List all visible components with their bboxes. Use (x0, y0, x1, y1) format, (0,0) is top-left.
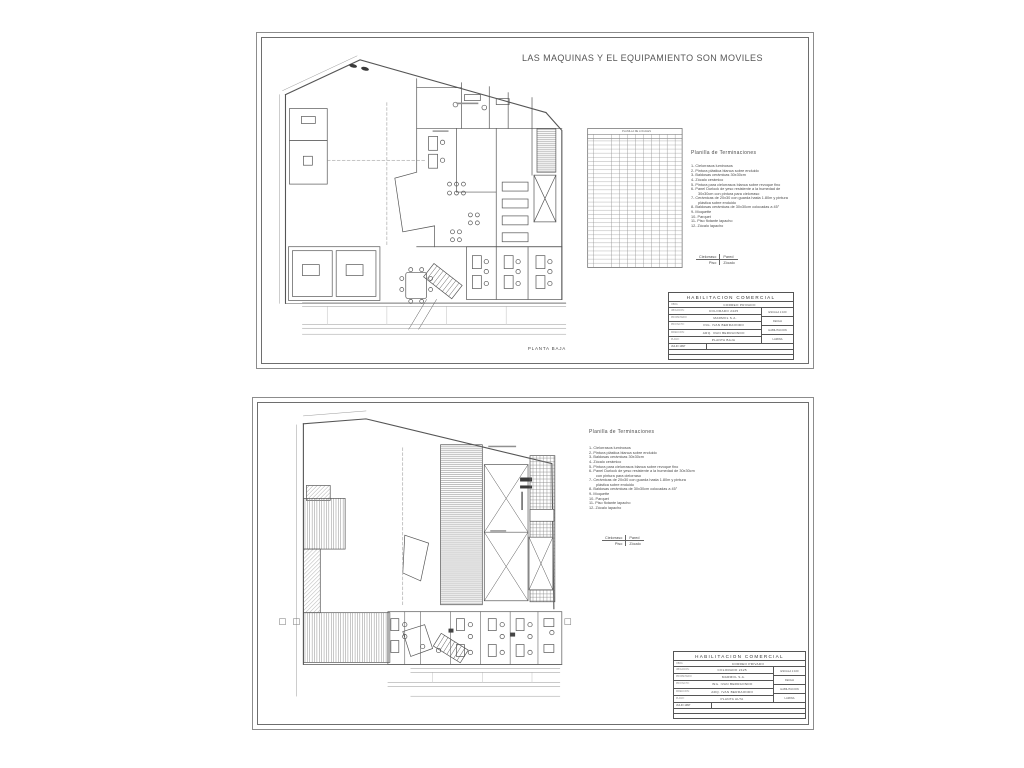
finishes-item: 10- Parquet (589, 497, 697, 501)
sheet-planta-alta: Planilla de Terminaciones 1- Cielorrasos… (252, 397, 814, 730)
title-block-side-cell: LAMINA (762, 335, 793, 344)
title-block-row: PLANO: PLANTA ALTA (674, 696, 773, 703)
finishes-item: 7- Cerámicas de 20x30 con guarda hasta 1… (589, 478, 697, 487)
title-block-row: PROYECTO: ING. IVAN BERRAONDO (669, 322, 761, 329)
finishes-heading: Planilla de Terminaciones (589, 429, 654, 435)
title-block-row: PROYECTO: ING. IVAN BERRAONDO (674, 681, 773, 688)
title-block-side-cell: HABILITACION (774, 685, 805, 694)
title-block-date: JULIO 1997 (674, 703, 712, 708)
title-block-side-cell: ESCALA 1:100 (762, 308, 793, 317)
mobile-equipment-note: LAS MAQUINAS Y EL EQUIPAMIENTO SON MOVIL… (522, 53, 763, 63)
finishes-item: 11- Piso flotante lapacho (691, 219, 795, 223)
finishes-item: 5- Pintura para cielorrasos blanca sobre… (691, 183, 795, 187)
finishes-item: 9- Moquette (589, 492, 697, 496)
title-block-side-cell: FECHA (762, 317, 793, 326)
subject-value: CORREO PRIVADO (686, 303, 793, 307)
title-block-planta-baja: HABILITACION COMERCIAL OBRA: CORREO PRIV… (668, 292, 794, 360)
key-floor-label: Piso (602, 541, 626, 546)
key-base-label: Zócalo (720, 260, 737, 265)
finishes-item: 2- Pintura plástica blanca sobre enduido (589, 451, 697, 455)
subject-label: OBRA: (669, 304, 686, 306)
title-block-empty-rows (669, 350, 793, 359)
title-block-side-cell: ESCALA 1:100 (774, 667, 805, 676)
finishes-item: 8- Baldosas cerámicas de 30x30cm colocad… (589, 487, 697, 491)
finishes-item: 1- Cielorrasos luminosos (589, 446, 697, 450)
finishes-key: Cielorraso Pared Piso Zócalo (696, 254, 738, 265)
key-base-label: Zócalo (626, 541, 643, 546)
room-schedule-title: PLANILLA DE LOCALES (589, 130, 684, 133)
sheet-planta-baja: LAS MAQUINAS Y EL EQUIPAMIENTO SON MOVIL… (256, 32, 814, 369)
finishes-list: 1- Cielorrasos luminosos2- Pintura plást… (589, 446, 697, 511)
subject-value: CORREO PRIVADO (691, 662, 805, 666)
finishes-item: 5- Pintura para cielorrasos blanca sobre… (589, 465, 697, 469)
title-block-row: PROPIETARIO: MARMOL S.A. (669, 315, 761, 322)
title-block-row: DIRECCION: ARQ. IVAN BERRAONDO (669, 330, 761, 337)
finishes-item: 2- Pintura plástica blanca sobre enduido (691, 169, 795, 173)
finishes-item: 1- Cielorrasos luminosos (691, 164, 795, 168)
finishes-item: 11- Piso flotante lapacho (589, 501, 697, 505)
plan-linework (280, 411, 571, 696)
title-block-side-cell: FECHA (774, 676, 805, 685)
finishes-list: 1- Cielorrasos luminosos2- Pintura plást… (691, 164, 795, 229)
finishes-item: 4- Zócalo cerámico (691, 178, 795, 182)
title-block-rows: UBICACION: COLORADO 2425 PROPIETARIO: MA… (674, 667, 773, 703)
finishes-item: 12- Zócalo lapacho (691, 224, 795, 228)
subject-label: OBRA: (674, 663, 691, 665)
title-block-side-cell: HABILITACION (762, 326, 793, 335)
finishes-item: 7- Cerámicas de 20x30 con guarda hasta 1… (691, 196, 795, 205)
finishes-item: 3- Baldosas cerámicas 30x30cm (691, 173, 795, 177)
title-block-row: PLANO: PLANTA BAJA (669, 337, 761, 344)
title-block-side-cell: LAMINA (774, 694, 805, 703)
title-block-rows: UBICACION: COLORADO 2425 PROPIETARIO: MA… (669, 308, 761, 344)
room-schedule-table (588, 128, 682, 267)
title-block-heading: HABILITACION COMERCIAL (669, 293, 793, 302)
title-block-row: UBICACION: COLORADO 2425 (669, 308, 761, 315)
title-block-empty-rows (674, 709, 805, 718)
key-floor-label: Piso (696, 260, 720, 265)
title-block-planta-alta: HABILITACION COMERCIAL OBRA: CORREO PRIV… (673, 651, 806, 719)
title-block-side-cells: ESCALA 1:100FECHAHABILITACIONLAMINA (773, 667, 805, 703)
finishes-item: 6- Panel Durlock de yeso resistente a la… (691, 187, 795, 196)
finishes-item: 6- Panel Durlock de yeso resistente a la… (589, 469, 697, 478)
finishes-key: Cielorraso Pared Piso Zócalo (602, 535, 644, 546)
finishes-item: 9- Moquette (691, 210, 795, 214)
title-block-side-cells: ESCALA 1:100FECHAHABILITACIONLAMINA (761, 308, 793, 344)
finishes-item: 4- Zócalo cerámico (589, 460, 697, 464)
finishes-heading: Planilla de Terminaciones (691, 150, 756, 156)
finishes-item: 12- Zócalo lapacho (589, 506, 697, 510)
title-block-row: UBICACION: COLORADO 2425 (674, 667, 773, 674)
plan-linework (280, 56, 683, 334)
page-canvas: LAS MAQUINAS Y EL EQUIPAMIENTO SON MOVIL… (0, 0, 1024, 768)
title-block-heading: HABILITACION COMERCIAL (674, 652, 805, 661)
finishes-item: 3- Baldosas cerámicas 30x30cm (589, 455, 697, 459)
finishes-item: 8- Baldosas cerámicas de 30x30cm colocad… (691, 205, 795, 209)
title-block-date: JULIO 1997 (669, 344, 707, 349)
title-block-row: DIRECCION: ARQ. IVAN BERRAONDO (674, 689, 773, 696)
title-block-row: PROPIETARIO: MARMOL S.A. (674, 674, 773, 681)
finishes-item: 10- Parquet (691, 215, 795, 219)
plan-label-planta-baja: PLANTA BAJA (509, 346, 585, 351)
